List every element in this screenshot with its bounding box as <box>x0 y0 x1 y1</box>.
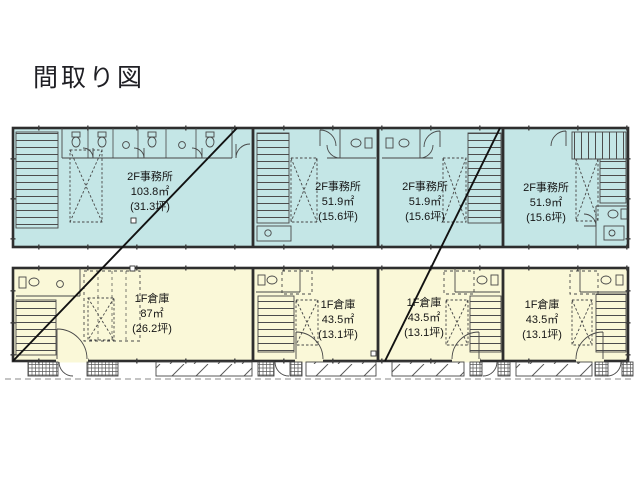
staircase-upper-flight <box>572 132 626 159</box>
2f-unit-3-label: 2F事務所 51.9㎡ (15.6坪) <box>370 180 480 225</box>
staircase-lower-flight <box>600 159 626 203</box>
unit-name: 2F事務所 <box>95 170 205 185</box>
unit-area: 43.5㎡ <box>369 311 479 326</box>
pillar <box>371 351 376 356</box>
2f-unit-4-label: 2F事務所 51.9㎡ (15.6坪) <box>491 181 601 226</box>
staircase <box>16 132 58 228</box>
floor-plan-page: 間取り図 2F事務所 103.8㎡ (31.3坪) 2F事務所 51.9㎡ (1… <box>0 0 640 480</box>
unit-area: 43.5㎡ <box>487 313 597 328</box>
1f-unit-1-label: 1F倉庫 87㎡ (26.2坪) <box>97 292 207 337</box>
apron-hatch <box>156 362 592 376</box>
1f-unit-3-label: 1F倉庫 43.5㎡ (13.1坪) <box>369 296 479 341</box>
unit-tsubo: (31.3坪) <box>95 200 205 215</box>
unit-tsubo: (26.2坪) <box>97 322 207 337</box>
site-elements <box>5 362 635 379</box>
2f-unit-1-label: 2F事務所 103.8㎡ (31.3坪) <box>95 170 205 215</box>
page-title: 間取り図 <box>33 58 145 94</box>
1f-unit-4-label: 1F倉庫 43.5㎡ (13.1坪) <box>487 298 597 343</box>
unit-name: 1F倉庫 <box>369 296 479 311</box>
unit-tsubo: (13.1坪) <box>487 328 597 343</box>
unit-area: 87㎡ <box>97 307 207 322</box>
unit-name: 2F事務所 <box>370 180 480 195</box>
unit-name: 2F事務所 <box>491 181 601 196</box>
unit-area: 51.9㎡ <box>370 195 480 210</box>
door-opening <box>56 358 88 363</box>
pillar <box>131 218 136 223</box>
staircase <box>596 294 626 352</box>
unit-tsubo: (15.6坪) <box>491 211 601 226</box>
unit-area: 51.9㎡ <box>491 196 601 211</box>
unit-tsubo: (15.6坪) <box>370 210 480 225</box>
pillar <box>130 266 135 271</box>
unit-name: 1F倉庫 <box>97 292 207 307</box>
unit-area: 103.8㎡ <box>95 185 205 200</box>
unit-tsubo: (13.1坪) <box>369 326 479 341</box>
unit-name: 1F倉庫 <box>487 298 597 313</box>
staircase <box>16 300 56 355</box>
